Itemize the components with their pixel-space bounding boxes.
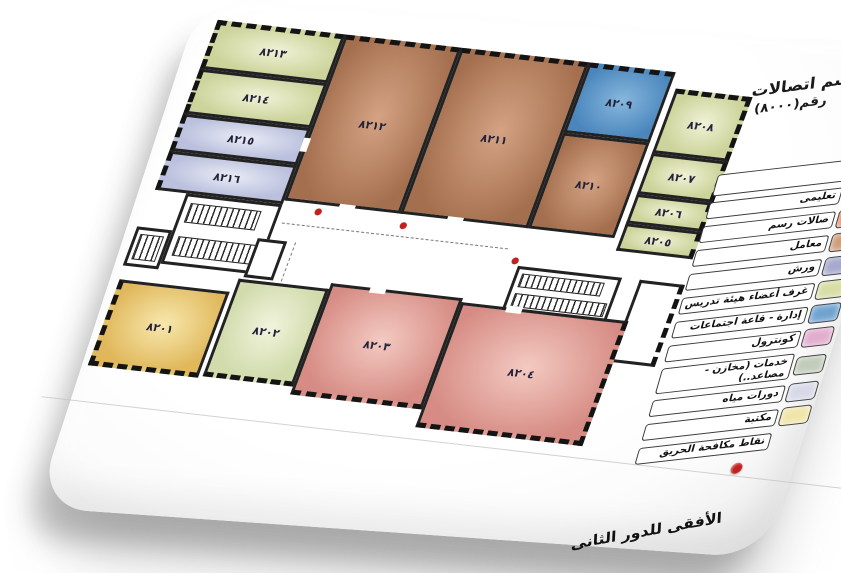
room-label: ٨٢١٠ [573, 178, 604, 194]
fire-point-legend-dot [729, 462, 744, 474]
room-label: ٨٢١٢ [357, 117, 388, 133]
legend-swatch [800, 326, 836, 348]
door-gap [446, 216, 464, 225]
room-label: ٨٢١٦ [211, 170, 242, 186]
fire-point-dot [510, 257, 519, 265]
legend-swatch [834, 206, 841, 228]
room-label: ٨٢١١ [479, 131, 510, 147]
floor-plan-label: الأفقى للدور الثانى [570, 509, 722, 553]
legend-swatch [827, 230, 841, 252]
fire-point-dot [399, 222, 408, 230]
room-label: ٨٢٠١ [145, 320, 176, 336]
room-label: ٨٢١٤ [241, 91, 272, 107]
room-label: ٨٢٠٧ [666, 170, 697, 186]
room-label: ٨٢٠٢ [251, 324, 282, 340]
legend-swatch [792, 353, 828, 375]
legend-swatch [777, 404, 813, 426]
room-label: ٨٢٠٥ [643, 233, 674, 249]
room-label: ٨٢٠٤ [506, 365, 537, 381]
room-label: ٨٢٠٦ [653, 205, 684, 221]
legend-swatch [784, 380, 820, 402]
room-label: ٨٢٠٩ [604, 96, 635, 112]
room-label: ٨٢٠٣ [361, 337, 392, 353]
corridor-dashed-line [282, 223, 508, 250]
legend-swatch [807, 302, 841, 324]
stair-flight [171, 236, 261, 265]
legend-swatch [814, 278, 841, 300]
stair-flight [517, 273, 605, 296]
stair-flight [131, 234, 164, 262]
stair-flight [184, 203, 262, 231]
room-label: ٨٢٠٨ [685, 118, 716, 134]
fire-point-dot [314, 208, 323, 216]
room-label: ٨٢١٣ [258, 45, 289, 61]
scene: ٨٢١٣ ٨٢١٤ ٨٢١٥ ٨٢١٦ ٨٢١٢ ٨٢١١ ٨٢٠٩ ٨٢١٠ … [0, 0, 841, 573]
plan-title: قسم اتصالات رقم(٨٠٠٠) [716, 63, 841, 122]
legend-swatch [821, 254, 841, 276]
floorplan-card: ٨٢١٣ ٨٢١٤ ٨٢١٥ ٨٢١٦ ٨٢١٢ ٨٢١١ ٨٢٠٩ ٨٢١٠ … [36, 0, 841, 558]
door-gap [338, 204, 356, 213]
room-label: ٨٢١٥ [226, 132, 257, 148]
